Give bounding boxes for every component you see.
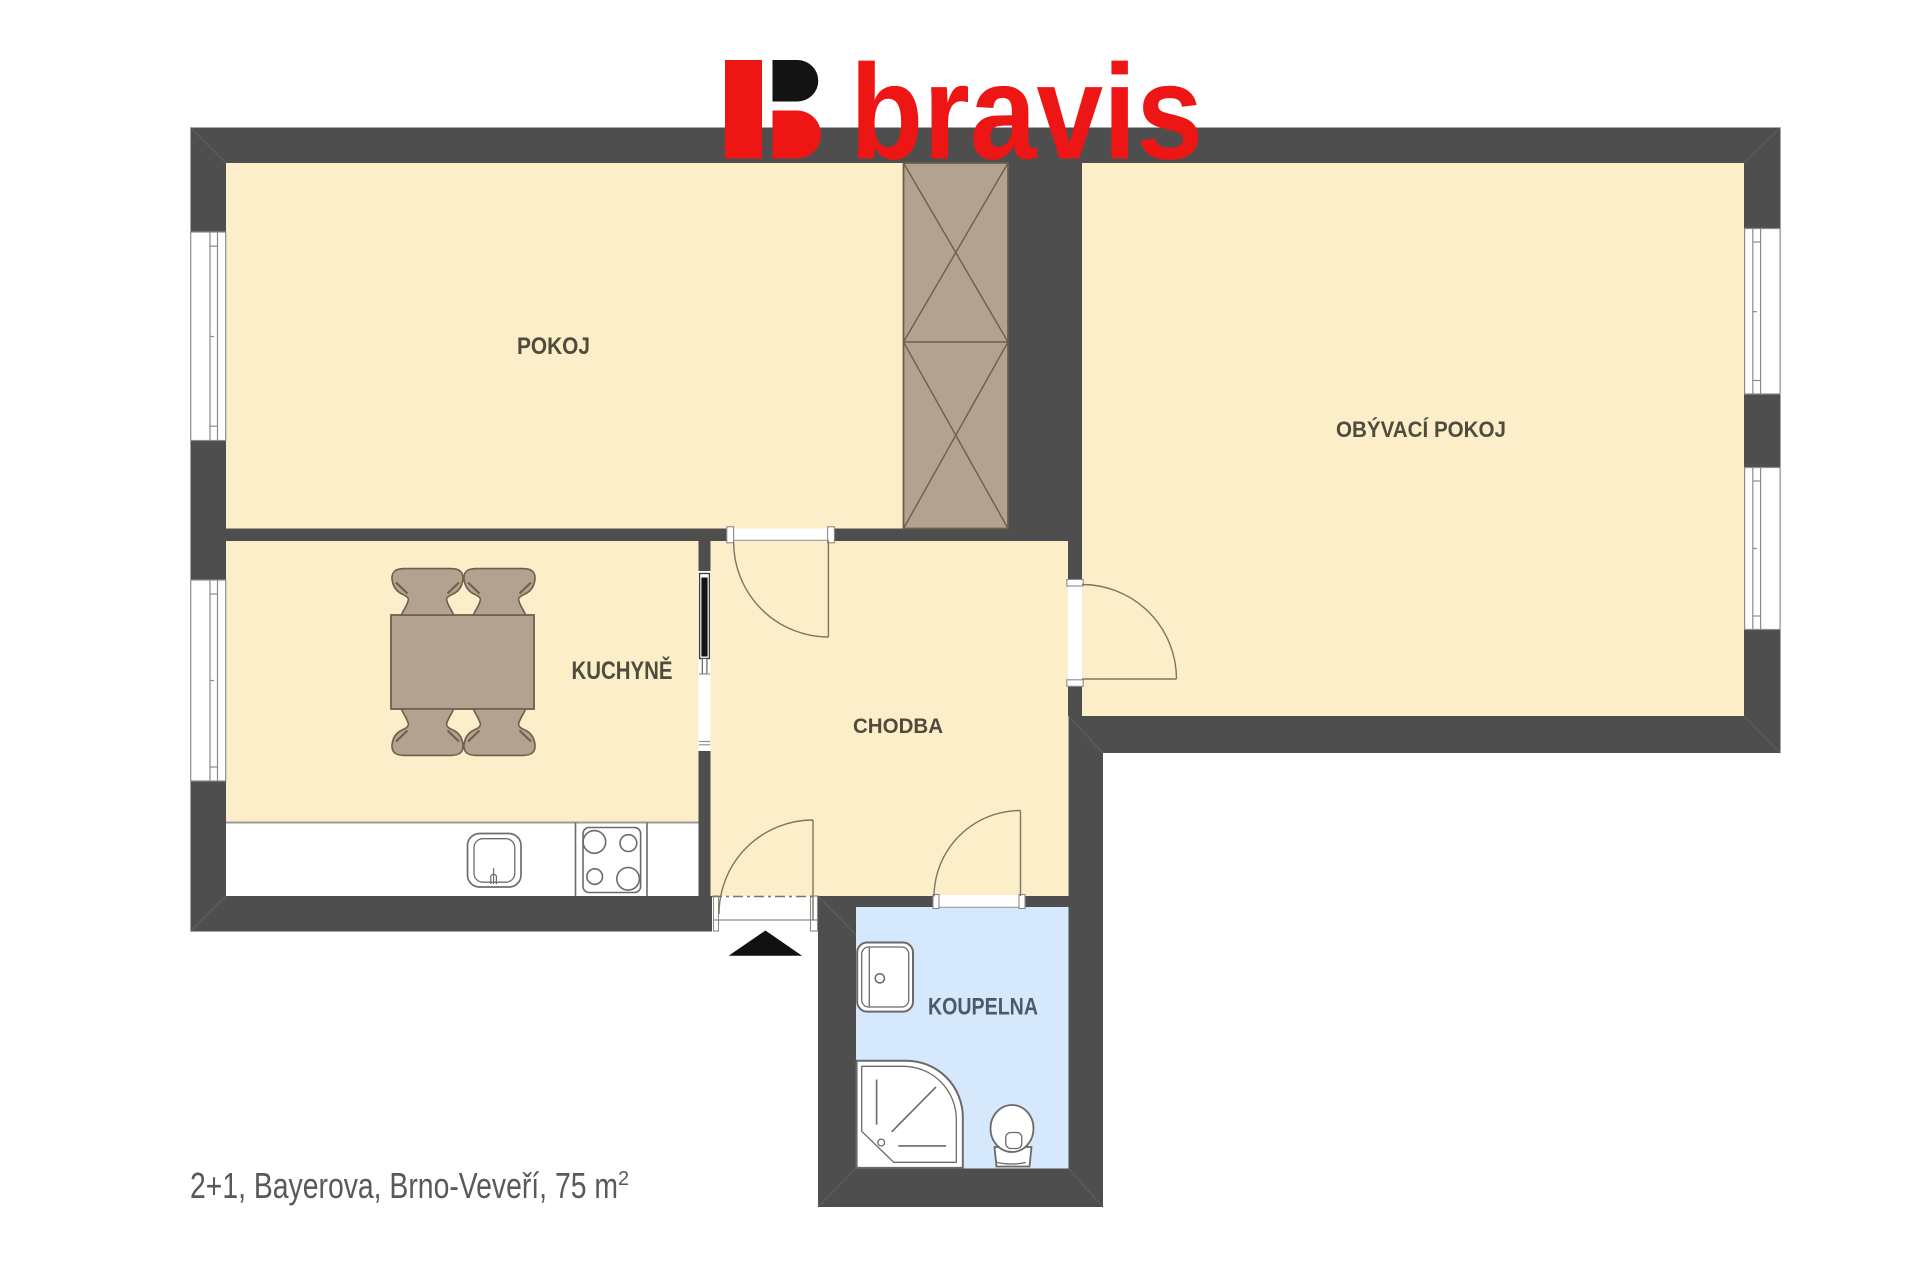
svg-text:KUCHYNĚ: KUCHYNĚ xyxy=(572,655,673,685)
svg-text:KOUPELNA: KOUPELNA xyxy=(928,994,1038,1021)
svg-text:2+1, Bayerova, Brno-Veveří, 75: 2+1, Bayerova, Brno-Veveří, 75 m xyxy=(190,1165,618,1206)
svg-text:POKOJ: POKOJ xyxy=(517,333,590,360)
svg-text:CHODBA: CHODBA xyxy=(853,714,943,738)
svg-text:OBÝVACÍ POKOJ: OBÝVACÍ POKOJ xyxy=(1336,417,1506,442)
svg-text:bravis: bravis xyxy=(850,37,1203,188)
svg-text:2: 2 xyxy=(618,1168,629,1190)
